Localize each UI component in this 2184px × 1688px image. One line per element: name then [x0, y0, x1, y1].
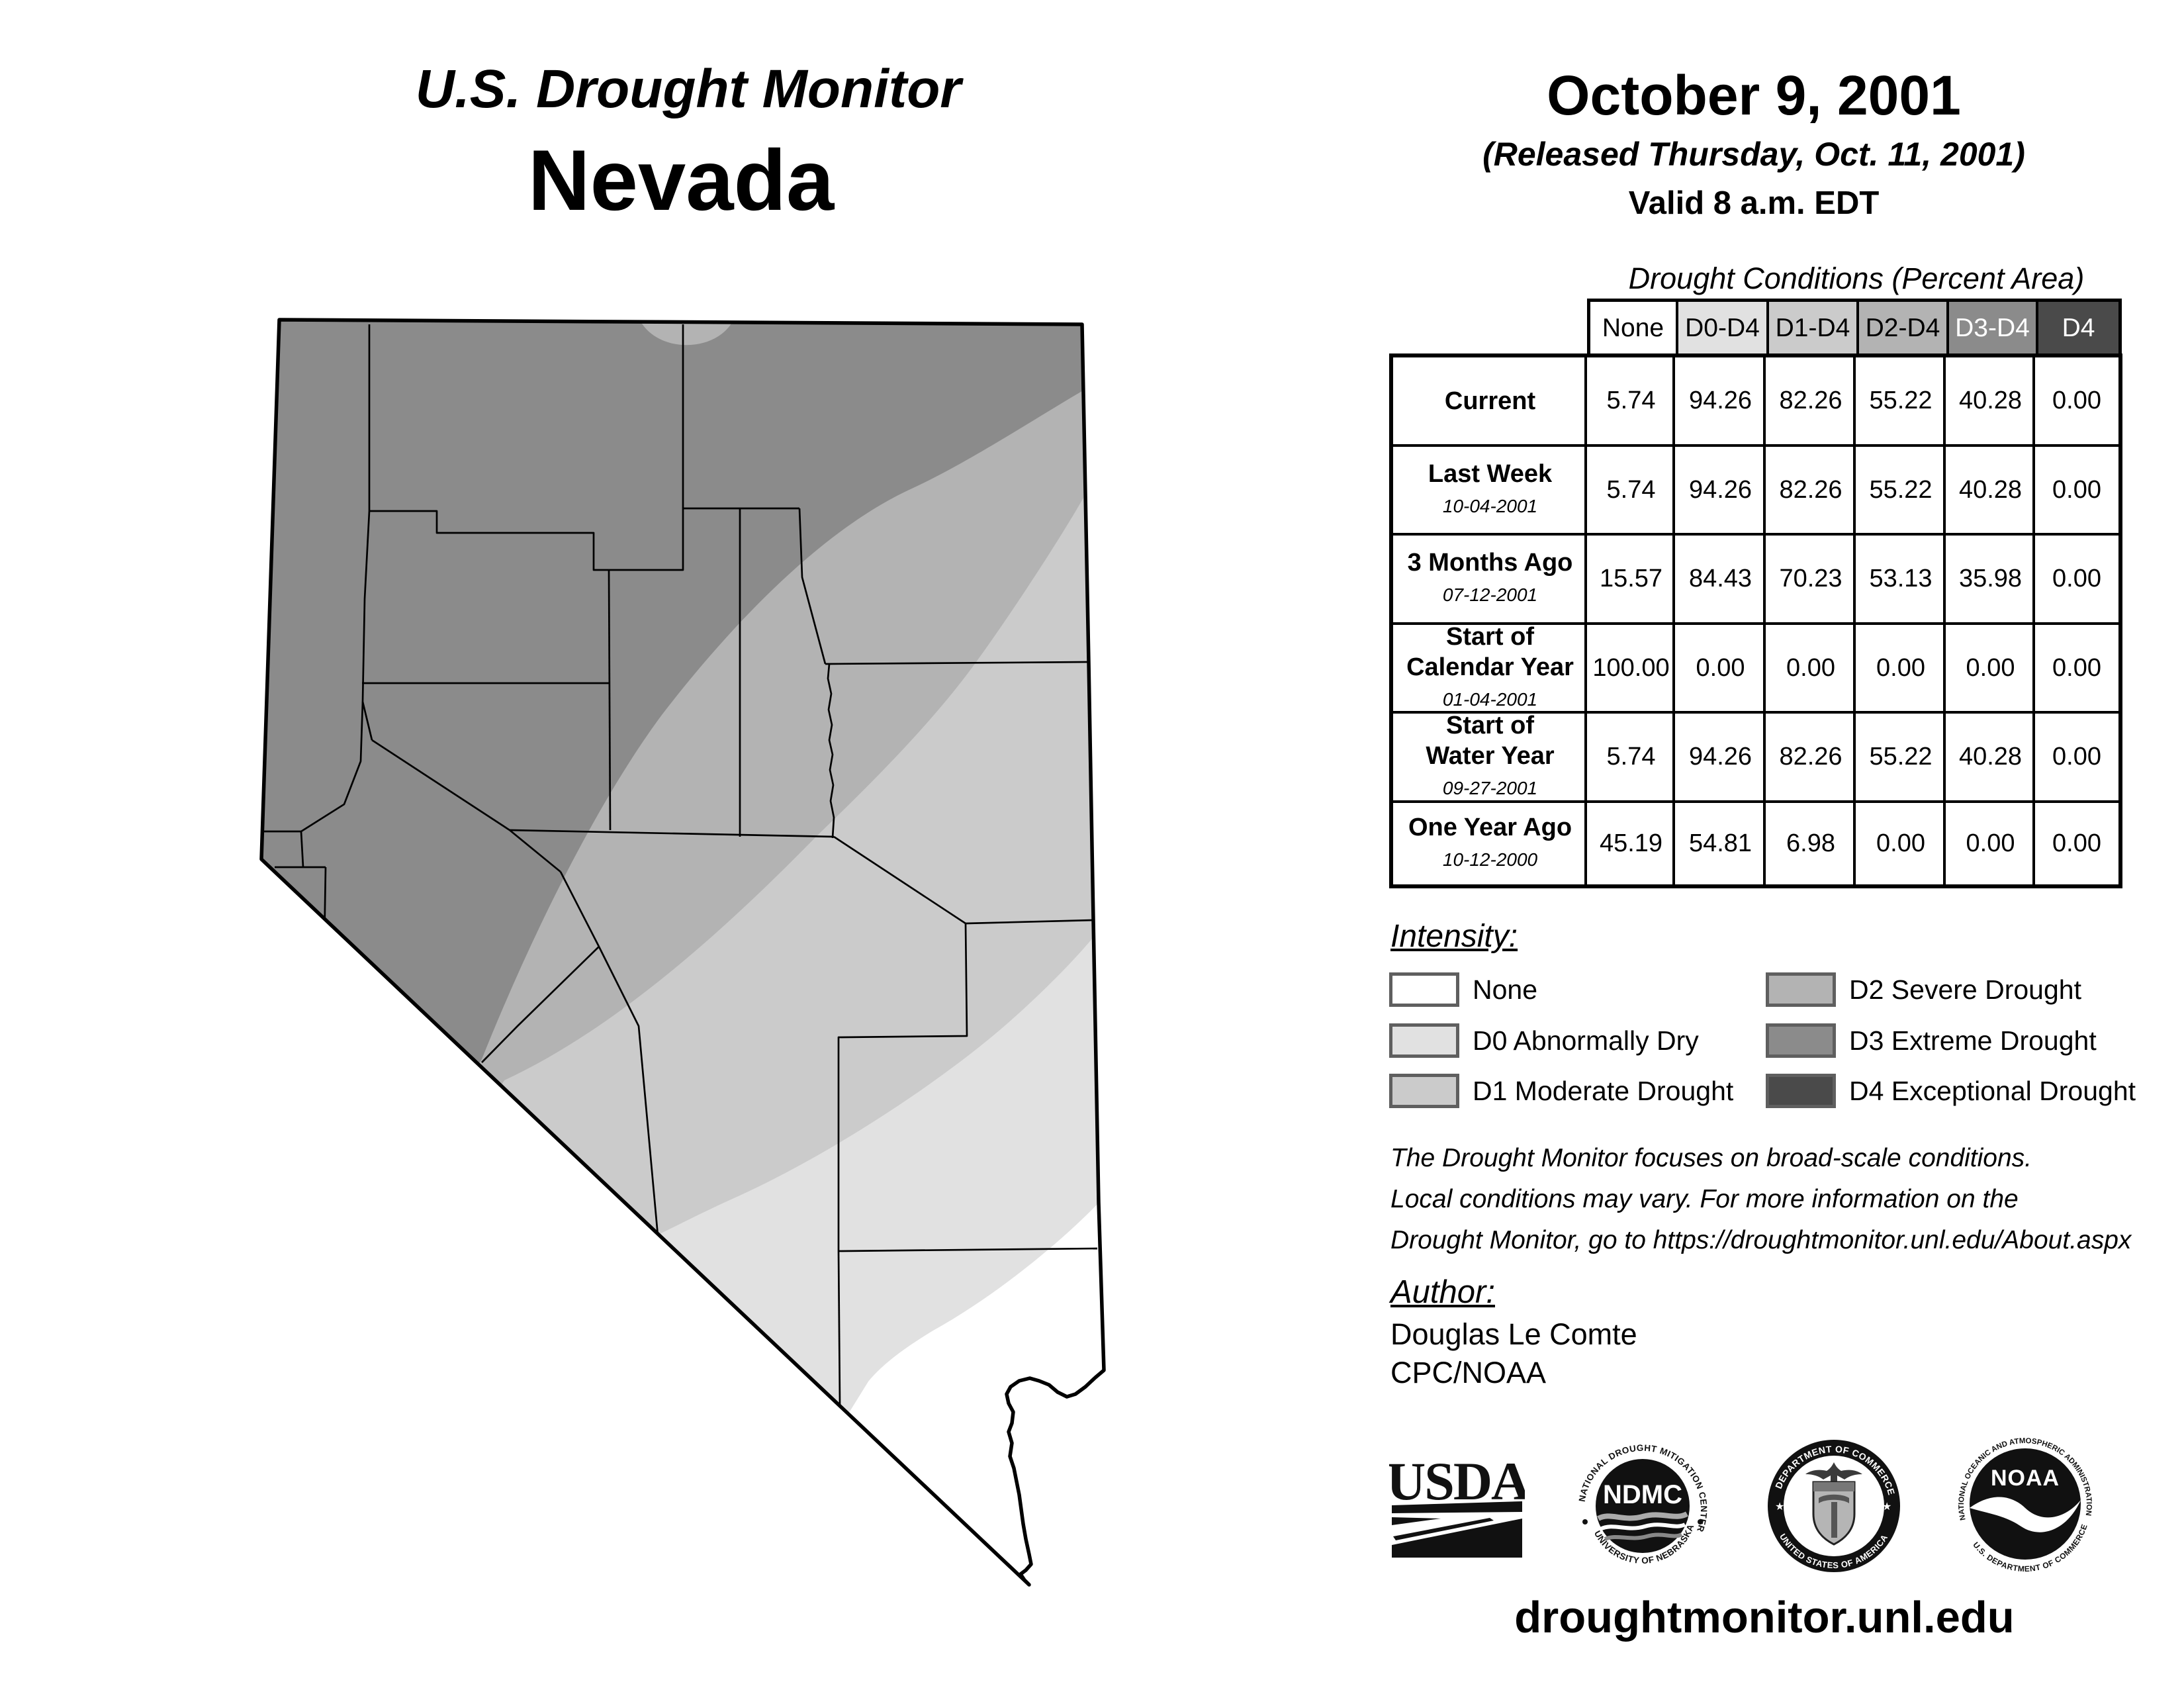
svg-text:★: ★: [1775, 1501, 1784, 1513]
svg-text:NDMC: NDMC: [1603, 1480, 1682, 1509]
svg-text:NOAA: NOAA: [1991, 1466, 2060, 1491]
svg-text:★: ★: [1882, 1501, 1891, 1513]
